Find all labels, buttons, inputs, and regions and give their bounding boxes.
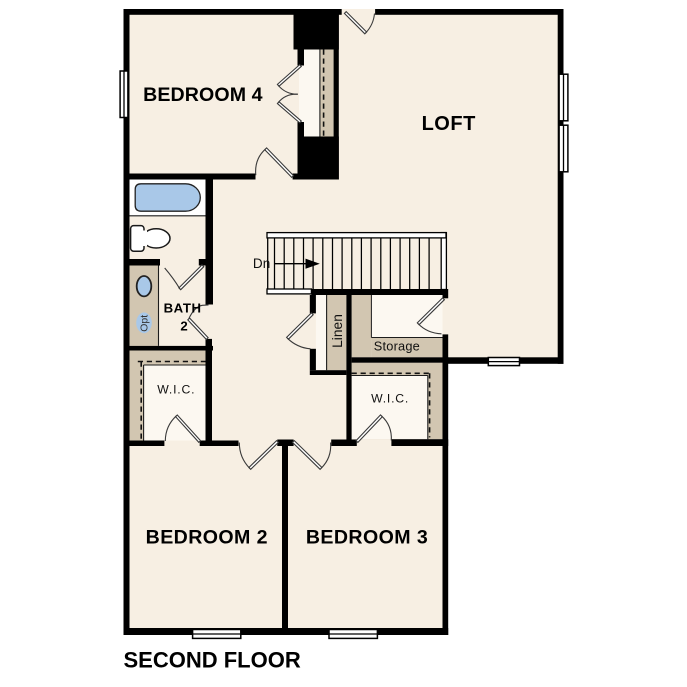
- svg-text:BATH: BATH: [164, 301, 202, 316]
- svg-text:W.I.C.: W.I.C.: [157, 383, 195, 397]
- svg-text:SECOND FLOOR: SECOND FLOOR: [124, 648, 301, 673]
- svg-text:W.I.C.: W.I.C.: [371, 391, 409, 405]
- svg-text:BEDROOM 3: BEDROOM 3: [306, 527, 428, 549]
- svg-text:BEDROOM 4: BEDROOM 4: [143, 84, 263, 106]
- svg-text:Linen: Linen: [330, 314, 345, 348]
- svg-text:Opt: Opt: [138, 315, 150, 332]
- svg-text:2: 2: [180, 318, 187, 333]
- svg-text:BEDROOM 2: BEDROOM 2: [146, 527, 268, 549]
- svg-text:Storage: Storage: [374, 339, 420, 354]
- svg-text:Dn: Dn: [253, 256, 270, 271]
- svg-text:LOFT: LOFT: [422, 113, 476, 135]
